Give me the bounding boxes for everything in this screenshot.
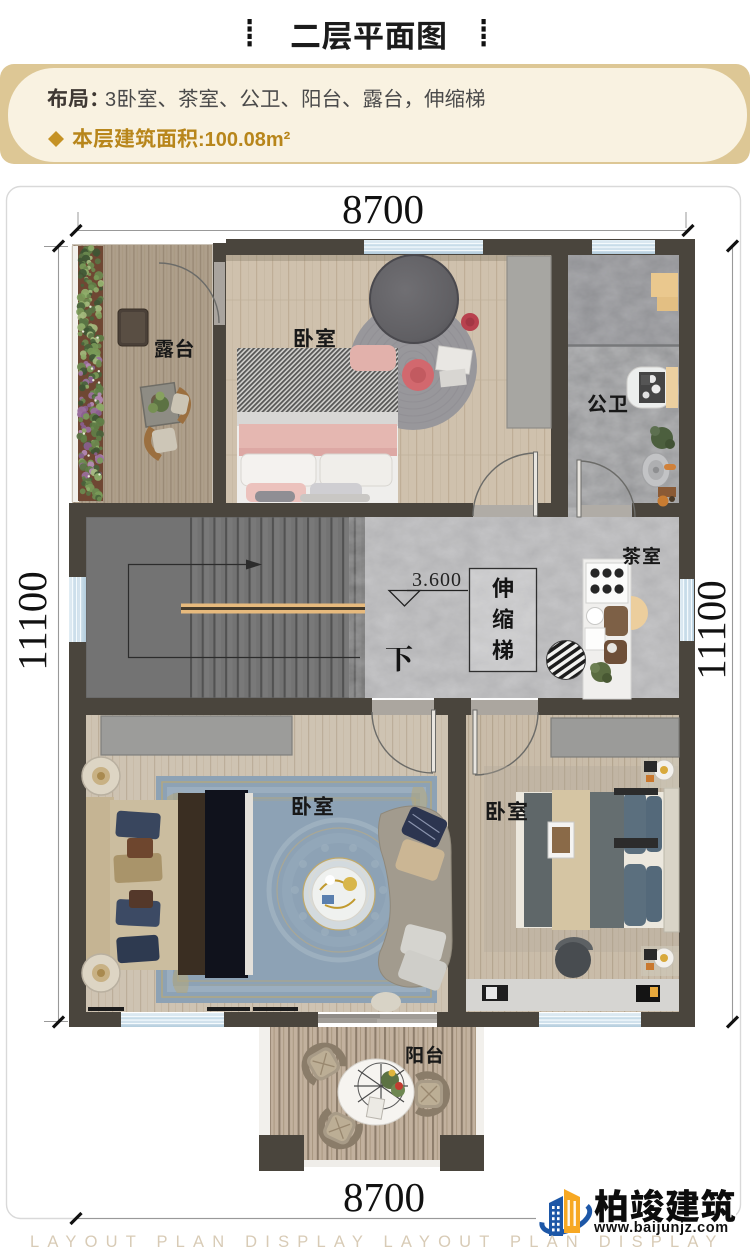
svg-text:LAYOUT PLAN DISPLAY LAYOUT PLA: LAYOUT PLAN DISPLAY LAYOUT PLAN DISPLAY bbox=[30, 1233, 725, 1251]
svg-text::100.08m²: :100.08m² bbox=[198, 129, 291, 151]
svg-text:8700: 8700 bbox=[343, 1174, 425, 1220]
svg-text:8700: 8700 bbox=[342, 186, 424, 232]
svg-text:3.600: 3.600 bbox=[412, 569, 462, 591]
svg-text:11100: 11100 bbox=[9, 571, 55, 670]
svg-text:3: 3 bbox=[105, 89, 116, 111]
